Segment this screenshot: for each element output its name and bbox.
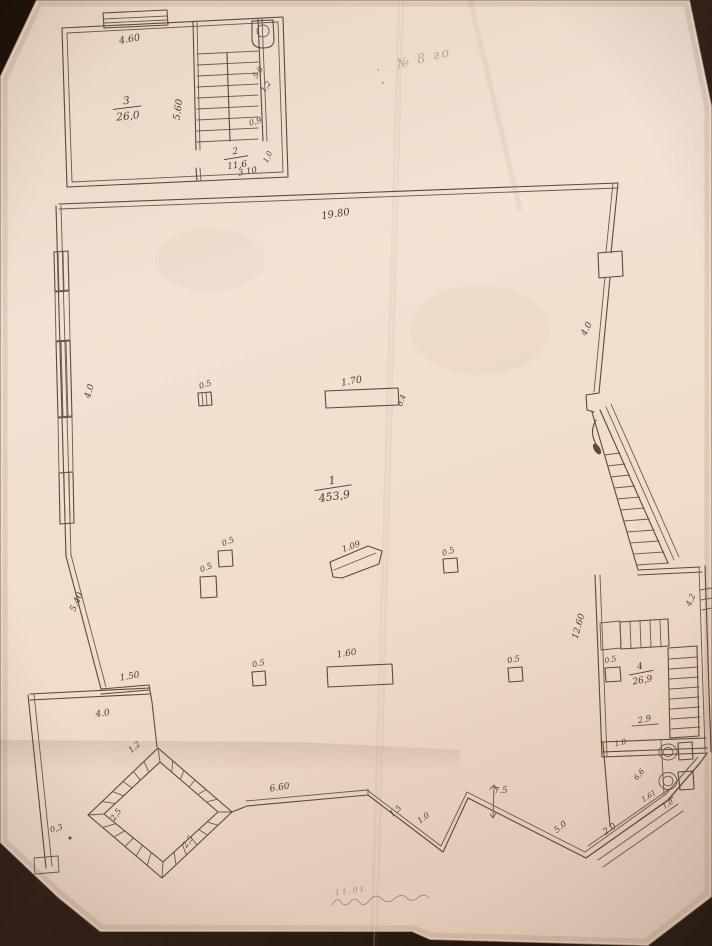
floor-plan-photo-svg: 326,0211,61453,9426,9 4.605.605,01,20,91… <box>0 0 712 946</box>
photo-vignette <box>0 0 712 946</box>
photo-of-floor-plan: 326,0211,61453,9426,9 4.605.605,01,20,91… <box>0 0 712 946</box>
